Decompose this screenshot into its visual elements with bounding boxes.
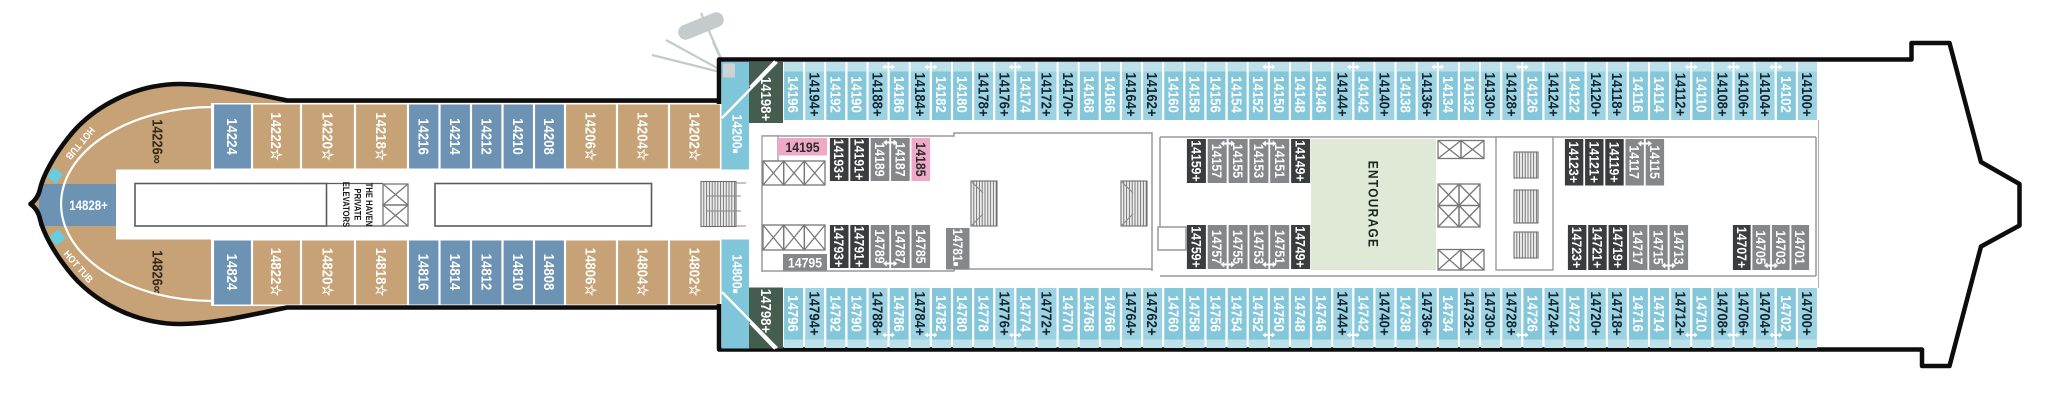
svg-text:14770: 14770 xyxy=(1060,295,1077,332)
svg-text:14187: 14187 xyxy=(892,142,908,176)
svg-text:14174: 14174 xyxy=(1017,76,1034,113)
svg-text:14190: 14190 xyxy=(848,76,865,113)
svg-text:14106+: 14106+ xyxy=(1736,72,1753,116)
svg-text:14755: 14755 xyxy=(1230,230,1246,264)
svg-text:14180: 14180 xyxy=(954,76,971,113)
svg-text:14112+: 14112+ xyxy=(1672,73,1689,117)
svg-text:14716: 14716 xyxy=(1630,295,1647,332)
svg-text:14154: 14154 xyxy=(1229,76,1246,113)
svg-text:14759+: 14759+ xyxy=(1188,226,1204,268)
svg-text:14740+: 14740+ xyxy=(1376,291,1393,335)
svg-text:14736+: 14736+ xyxy=(1419,291,1436,335)
svg-text:14814: 14814 xyxy=(447,254,464,291)
svg-text:14789: 14789 xyxy=(872,229,888,263)
svg-text:14186: 14186 xyxy=(891,76,908,113)
svg-text:14756: 14756 xyxy=(1207,295,1224,332)
svg-text:14826∞: 14826∞ xyxy=(149,250,165,295)
svg-text:14723+: 14723+ xyxy=(1569,227,1585,269)
svg-text:14108+: 14108+ xyxy=(1714,72,1731,116)
svg-text:14707+: 14707+ xyxy=(1734,227,1750,269)
svg-text:14153: 14153 xyxy=(1251,144,1267,178)
svg-text:14804☆: 14804☆ xyxy=(634,248,651,297)
svg-text:14822☆: 14822☆ xyxy=(268,248,285,297)
svg-text:14719+: 14719+ xyxy=(1610,227,1626,269)
svg-text:14742: 14742 xyxy=(1355,295,1372,332)
svg-text:14712+: 14712+ xyxy=(1672,291,1689,335)
svg-text:14196: 14196 xyxy=(785,76,802,113)
svg-text:14816: 14816 xyxy=(415,254,432,291)
svg-text:14706+: 14706+ xyxy=(1736,291,1753,335)
svg-text:14191+: 14191+ xyxy=(851,139,867,181)
svg-text:14748: 14748 xyxy=(1292,295,1309,332)
svg-text:14788+: 14788+ xyxy=(870,291,887,335)
svg-text:14168: 14168 xyxy=(1081,76,1098,113)
svg-text:14772+: 14772+ xyxy=(1038,291,1055,335)
svg-text:14752: 14752 xyxy=(1250,295,1267,332)
svg-text:14159+: 14159+ xyxy=(1188,140,1204,182)
svg-text:14800■: 14800■ xyxy=(729,254,745,293)
svg-text:14166: 14166 xyxy=(1102,76,1119,113)
svg-text:14722: 14722 xyxy=(1567,295,1584,332)
svg-text:14188+: 14188+ xyxy=(870,72,887,116)
svg-text:ENTOURAGE: ENTOURAGE xyxy=(1365,161,1381,249)
svg-text:14753: 14753 xyxy=(1251,230,1267,264)
svg-text:14218☆: 14218☆ xyxy=(373,112,390,161)
svg-text:14155: 14155 xyxy=(1230,144,1246,178)
svg-text:14781■: 14781■ xyxy=(950,229,966,267)
svg-text:14766: 14766 xyxy=(1102,295,1119,332)
svg-text:14117: 14117 xyxy=(1626,145,1642,179)
svg-text:14738: 14738 xyxy=(1398,295,1415,332)
svg-text:14150: 14150 xyxy=(1271,76,1288,113)
svg-text:14206☆: 14206☆ xyxy=(582,112,599,161)
svg-text:14760: 14760 xyxy=(1165,295,1182,332)
svg-text:14156: 14156 xyxy=(1207,76,1224,113)
svg-text:14214: 14214 xyxy=(447,118,464,155)
svg-text:14792: 14792 xyxy=(827,295,844,332)
svg-text:14828+: 14828+ xyxy=(69,198,108,213)
svg-text:14714: 14714 xyxy=(1651,295,1668,332)
svg-text:14746: 14746 xyxy=(1313,295,1330,332)
svg-text:14700+: 14700+ xyxy=(1799,291,1816,335)
svg-text:14802☆: 14802☆ xyxy=(686,248,703,297)
svg-text:14808: 14808 xyxy=(541,254,558,291)
svg-text:14226∞: 14226∞ xyxy=(149,119,165,164)
svg-text:14158: 14158 xyxy=(1186,76,1203,113)
svg-text:14818☆: 14818☆ xyxy=(373,248,390,297)
svg-text:14713: 14713 xyxy=(1671,230,1687,264)
svg-text:14721+: 14721+ xyxy=(1589,227,1605,269)
svg-text:14710: 14710 xyxy=(1693,295,1710,332)
svg-text:14751: 14751 xyxy=(1272,230,1288,264)
svg-text:14200■: 14200■ xyxy=(729,114,745,153)
svg-text:14114: 14114 xyxy=(1651,77,1668,113)
svg-text:14204☆: 14204☆ xyxy=(634,112,651,161)
svg-text:14123+: 14123+ xyxy=(1566,141,1582,183)
svg-text:14184+: 14184+ xyxy=(912,72,929,116)
svg-text:14194+: 14194+ xyxy=(806,72,823,116)
svg-text:14791+: 14791+ xyxy=(851,226,867,268)
svg-text:14140+: 14140+ xyxy=(1376,72,1393,116)
svg-text:14764+: 14764+ xyxy=(1123,291,1140,335)
svg-text:14178+: 14178+ xyxy=(975,72,992,116)
svg-text:14182: 14182 xyxy=(933,76,950,113)
svg-text:14768: 14768 xyxy=(1081,295,1098,332)
svg-text:14703: 14703 xyxy=(1773,230,1789,264)
svg-text:14786: 14786 xyxy=(891,295,908,332)
svg-text:14798+: 14798+ xyxy=(758,289,775,333)
svg-text:14734: 14734 xyxy=(1440,295,1457,332)
svg-text:14758: 14758 xyxy=(1186,295,1203,332)
svg-text:14192: 14192 xyxy=(827,76,844,113)
svg-text:14176+: 14176+ xyxy=(996,72,1013,116)
svg-text:14138: 14138 xyxy=(1398,76,1415,113)
svg-text:14702: 14702 xyxy=(1778,295,1795,332)
svg-text:14715: 14715 xyxy=(1650,230,1666,264)
svg-text:14100+: 14100+ xyxy=(1799,72,1816,116)
svg-text:14787: 14787 xyxy=(892,229,908,263)
svg-text:14806☆: 14806☆ xyxy=(582,248,599,297)
svg-text:14754: 14754 xyxy=(1229,295,1246,332)
svg-text:14730+: 14730+ xyxy=(1482,291,1499,335)
svg-text:14144+: 14144+ xyxy=(1334,72,1351,116)
svg-text:14116: 14116 xyxy=(1630,77,1647,113)
svg-text:14774: 14774 xyxy=(1017,295,1034,332)
svg-text:14704+: 14704+ xyxy=(1757,291,1774,335)
svg-text:14744+: 14744+ xyxy=(1334,291,1351,335)
svg-text:14812: 14812 xyxy=(478,254,495,291)
svg-text:14162+: 14162+ xyxy=(1144,72,1161,116)
svg-text:14224: 14224 xyxy=(224,118,241,155)
svg-text:14172+: 14172+ xyxy=(1038,72,1055,116)
svg-text:14118+: 14118+ xyxy=(1609,73,1626,117)
svg-text:14122: 14122 xyxy=(1567,76,1584,113)
svg-text:14216: 14216 xyxy=(415,118,432,155)
svg-text:14785: 14785 xyxy=(913,229,929,263)
svg-text:14195: 14195 xyxy=(785,139,819,155)
svg-text:14718+: 14718+ xyxy=(1609,291,1626,335)
svg-text:14208: 14208 xyxy=(541,118,558,155)
svg-text:14222☆: 14222☆ xyxy=(268,112,285,161)
svg-text:14102: 14102 xyxy=(1778,76,1795,113)
svg-text:14119+: 14119+ xyxy=(1606,142,1622,183)
svg-text:14820☆: 14820☆ xyxy=(319,248,336,297)
svg-text:14220☆: 14220☆ xyxy=(319,112,336,161)
svg-text:14705: 14705 xyxy=(1753,230,1769,264)
svg-text:14189: 14189 xyxy=(872,142,888,176)
svg-text:14124+: 14124+ xyxy=(1545,72,1562,116)
svg-text:14202☆: 14202☆ xyxy=(686,112,703,161)
svg-text:14212: 14212 xyxy=(478,118,495,155)
svg-text:14750: 14750 xyxy=(1271,295,1288,332)
svg-text:14126: 14126 xyxy=(1524,76,1541,113)
svg-text:14701: 14701 xyxy=(1792,230,1808,264)
svg-text:14824: 14824 xyxy=(224,254,241,291)
svg-text:14782: 14782 xyxy=(933,295,950,332)
svg-text:14790: 14790 xyxy=(848,295,865,332)
svg-text:14185: 14185 xyxy=(913,142,929,176)
svg-text:14793+: 14793+ xyxy=(831,226,847,268)
svg-text:14121+: 14121+ xyxy=(1586,141,1602,183)
svg-text:14726: 14726 xyxy=(1524,295,1541,332)
svg-text:14134: 14134 xyxy=(1440,76,1457,113)
svg-text:14142: 14142 xyxy=(1355,76,1372,113)
svg-text:14115: 14115 xyxy=(1647,145,1663,179)
svg-text:14810: 14810 xyxy=(510,254,527,291)
svg-text:14757: 14757 xyxy=(1209,230,1225,264)
svg-text:14784+: 14784+ xyxy=(912,291,929,335)
svg-text:14780: 14780 xyxy=(954,295,971,332)
svg-text:14717: 14717 xyxy=(1630,230,1646,264)
svg-text:14170+: 14170+ xyxy=(1060,72,1077,116)
svg-text:14160: 14160 xyxy=(1165,76,1182,113)
svg-text:14146: 14146 xyxy=(1313,76,1330,113)
svg-text:14724+: 14724+ xyxy=(1545,291,1562,335)
svg-text:14795: 14795 xyxy=(788,255,822,271)
svg-text:14732+: 14732+ xyxy=(1461,291,1478,335)
svg-text:14152: 14152 xyxy=(1250,76,1267,113)
svg-text:14157: 14157 xyxy=(1209,144,1225,178)
svg-text:14104+: 14104+ xyxy=(1757,72,1774,116)
svg-text:14720+: 14720+ xyxy=(1588,291,1605,335)
svg-text:14708+: 14708+ xyxy=(1714,291,1731,335)
svg-text:14148: 14148 xyxy=(1292,76,1309,113)
svg-text:14120+: 14120+ xyxy=(1588,72,1605,116)
svg-text:14749+: 14749+ xyxy=(1292,226,1308,268)
svg-text:14164+: 14164+ xyxy=(1123,72,1140,116)
svg-text:14136+: 14136+ xyxy=(1419,72,1436,116)
svg-text:14149+: 14149+ xyxy=(1292,140,1308,182)
svg-text:14193+: 14193+ xyxy=(831,139,847,181)
svg-text:14728+: 14728+ xyxy=(1503,291,1520,335)
svg-text:14128+: 14128+ xyxy=(1503,72,1520,116)
svg-text:14130+: 14130+ xyxy=(1482,72,1499,116)
svg-text:14110: 14110 xyxy=(1693,77,1710,113)
svg-text:14778: 14778 xyxy=(975,295,992,332)
svg-text:14776+: 14776+ xyxy=(996,291,1013,335)
svg-text:14210: 14210 xyxy=(510,118,527,155)
svg-text:14794+: 14794+ xyxy=(806,291,823,335)
svg-text:14762+: 14762+ xyxy=(1144,291,1161,335)
svg-text:14151: 14151 xyxy=(1272,144,1288,178)
svg-text:14796: 14796 xyxy=(785,295,802,332)
svg-text:14198+: 14198+ xyxy=(758,77,775,121)
svg-text:14132: 14132 xyxy=(1461,76,1478,113)
